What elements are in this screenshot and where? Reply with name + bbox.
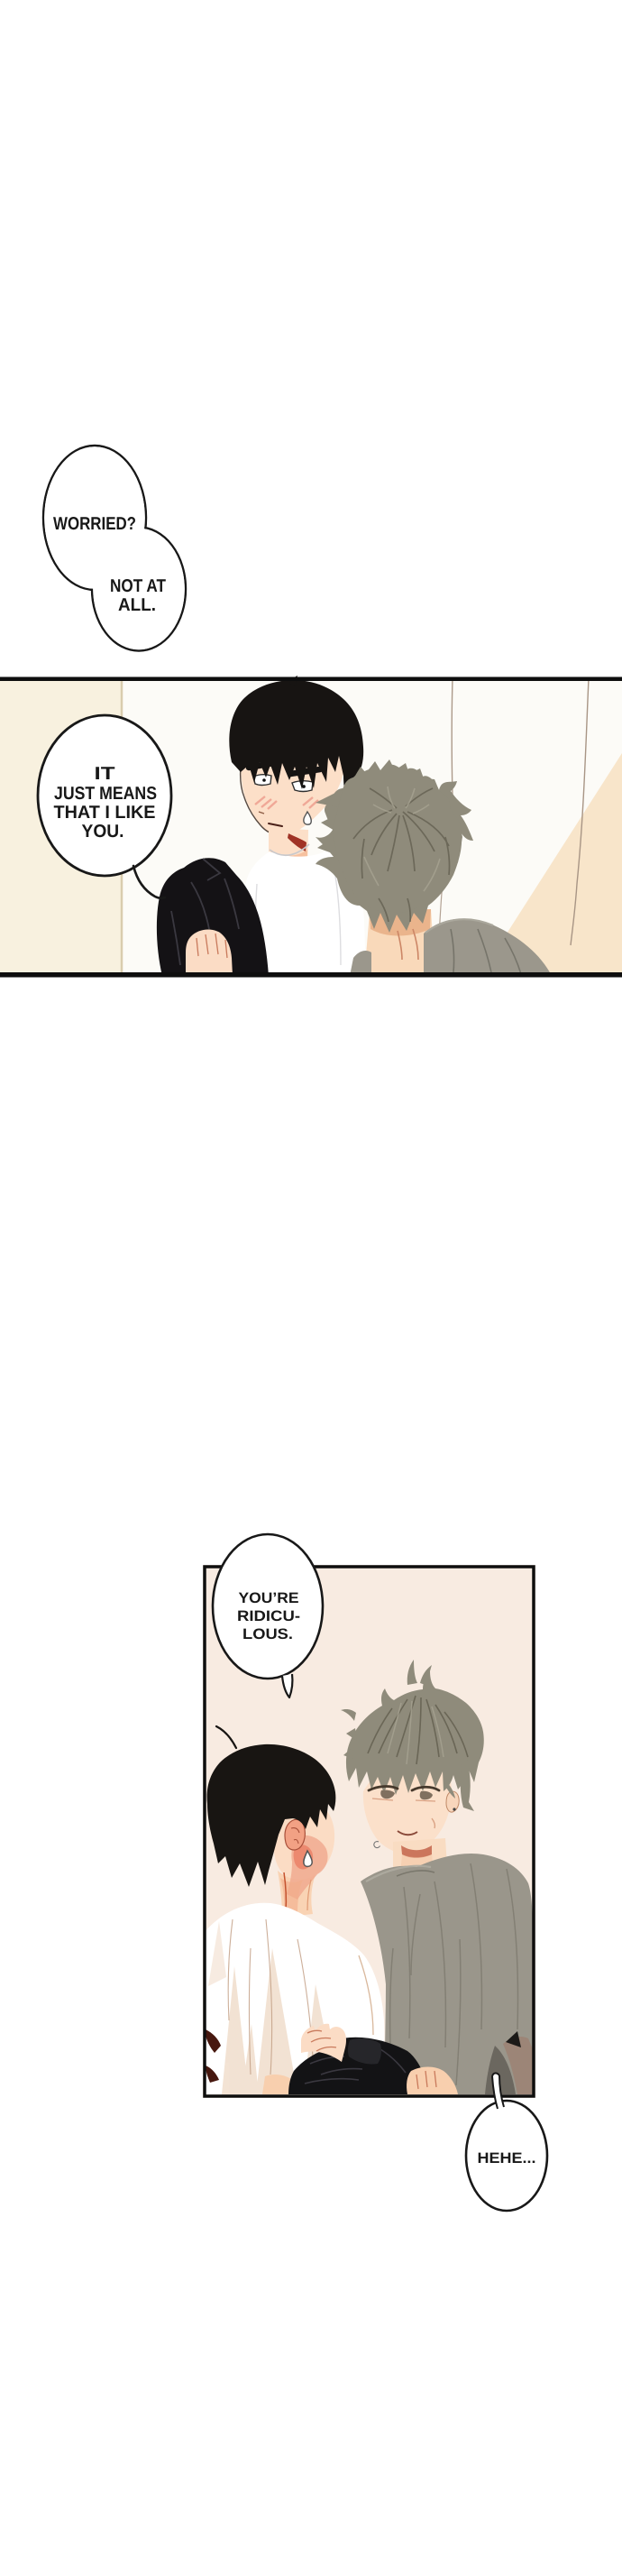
svg-text:YOU’RE: YOU’RE xyxy=(239,1590,299,1606)
svg-text:THAT I LIKE: THAT I LIKE xyxy=(54,803,156,823)
svg-text:IT: IT xyxy=(95,764,115,784)
svg-text:RIDICU-: RIDICU- xyxy=(237,1608,300,1624)
svg-text:LOUS.: LOUS. xyxy=(242,1626,293,1642)
svg-text:NOT AT: NOT AT xyxy=(110,576,166,596)
svg-text:WORRIED?: WORRIED? xyxy=(53,514,136,534)
svg-text:HEHE...: HEHE... xyxy=(478,2150,536,2167)
svg-text:ALL.: ALL. xyxy=(118,595,156,615)
svg-text:JUST MEANS: JUST MEANS xyxy=(54,784,157,804)
svg-text:YOU.: YOU. xyxy=(82,822,124,842)
